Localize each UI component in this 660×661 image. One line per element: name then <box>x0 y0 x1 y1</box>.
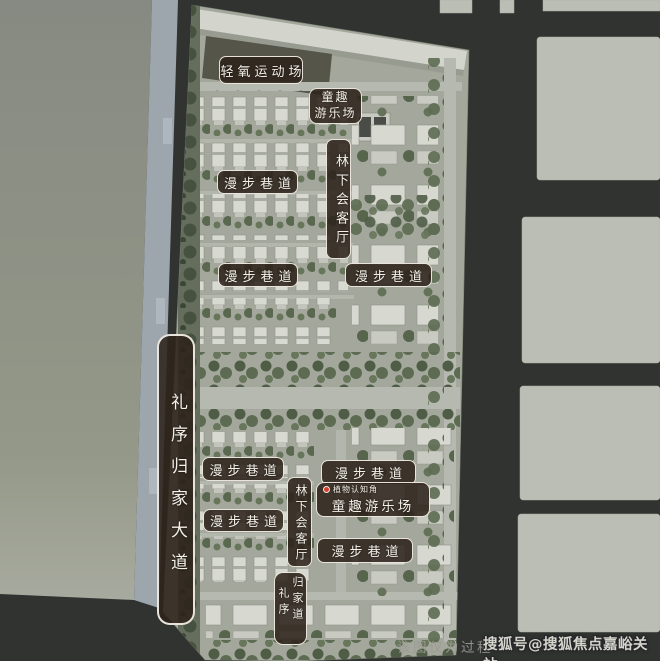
kids-top-line2: 游乐场 <box>314 106 356 122</box>
label-sports-field: 轻氧运动场 <box>219 56 303 84</box>
label-kids-playground-top: 童趣 游乐场 <box>309 88 362 124</box>
label-forest-lounge-2: 林下会客厅 <box>287 477 312 567</box>
disclaimer-text: 该图仅为过程 <box>397 636 493 656</box>
label-stroll-lane-1: 漫步巷道 <box>217 170 298 194</box>
left-parcel <box>0 0 152 600</box>
east-tree-strip <box>428 58 444 642</box>
plant-corner-row: 植物认知角 <box>323 485 423 495</box>
label-forest-lounge-1: 林下会客厅 <box>326 139 351 259</box>
homecoming-right-column: 归家道 <box>291 576 304 624</box>
kids-top-line1: 童趣 <box>321 90 349 106</box>
site-plan-page: 轻氧运动场 童趣 游乐场 漫步巷道 林下会客厅 漫步巷道 漫步巷道 礼序归家大道… <box>0 0 660 661</box>
south-building-strip <box>206 598 458 638</box>
label-stroll-lane-6: 漫步巷道 <box>203 509 284 532</box>
label-stroll-lane-4: 漫步巷道 <box>202 457 284 481</box>
kids-bottom-text: 童趣游乐场 <box>323 495 423 515</box>
label-ritual-homecoming-avenue: 礼序归家大道 <box>157 334 195 625</box>
red-dot-icon <box>323 486 330 493</box>
courtyard-trees <box>350 195 440 240</box>
homecoming-left-column: 礼序 <box>277 587 290 619</box>
label-stroll-lane-7: 漫步巷道 <box>317 538 413 563</box>
sohu-watermark: 搜狐号@搜狐焦点嘉峪关站 <box>483 633 660 661</box>
label-stroll-lane-3: 漫步巷道 <box>345 263 432 287</box>
label-stroll-lane-2: 漫步巷道 <box>218 263 298 287</box>
label-homecoming-ritual-lane: 礼序 归家道 <box>274 572 307 645</box>
plant-corner-text: 植物认知角 <box>333 484 378 495</box>
label-kids-playground-bottom: 植物认知角 童趣游乐场 <box>316 482 430 517</box>
